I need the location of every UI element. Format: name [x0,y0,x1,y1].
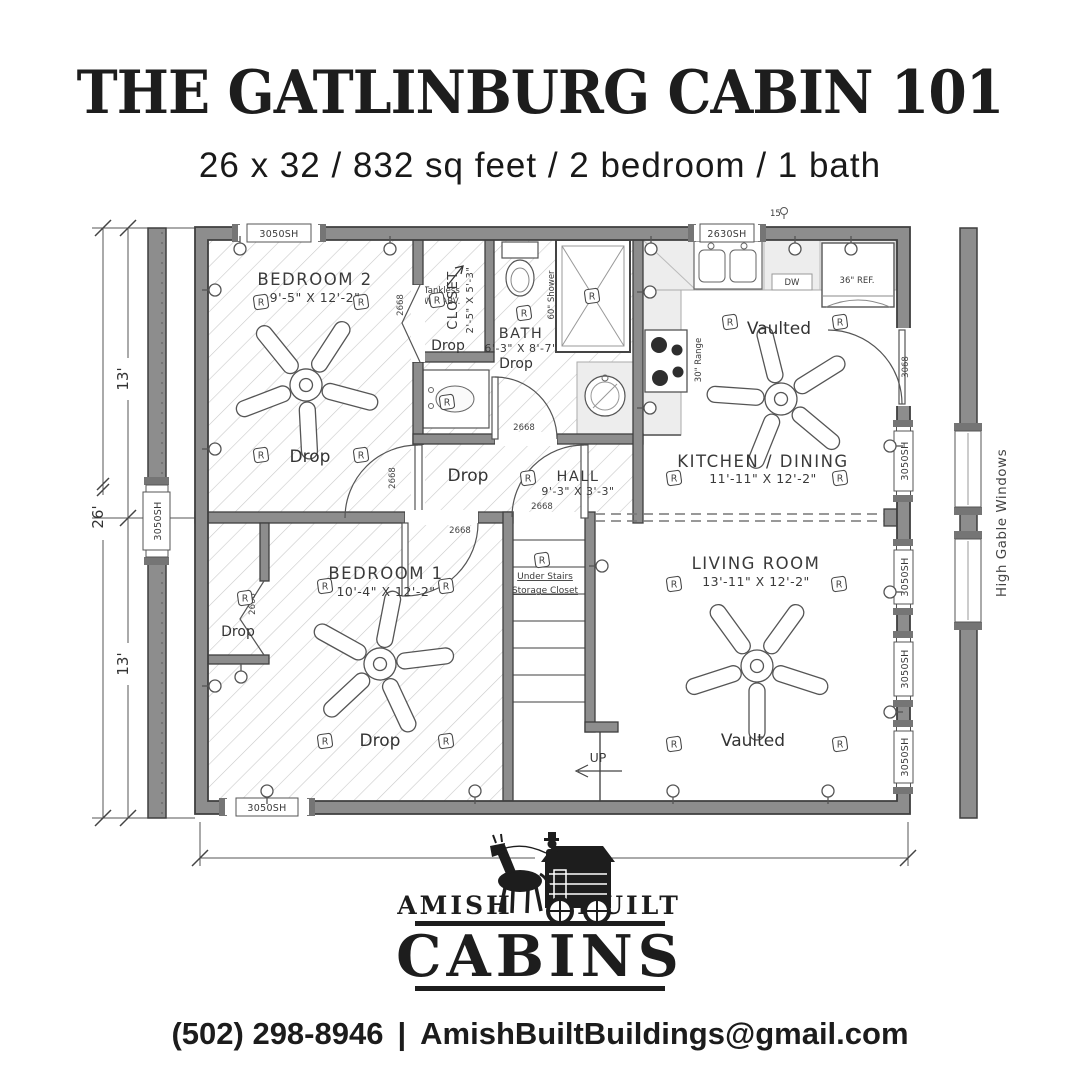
bath-dims: 6'-3" X 8'-7" [484,342,557,355]
recessed-light-icon [722,314,738,330]
left-window-label: 3050SH [153,501,164,540]
bath-name: BATH [499,326,544,342]
range: 30" Range [645,330,704,392]
logo-cabins: CABINS [396,923,684,990]
svg-text:3050SH: 3050SH [900,441,911,480]
drop-label: Drop [448,466,489,486]
bedroom2-dims: 9'-5" X 12'-2" [270,290,361,305]
svg-text:3050SH: 3050SH [259,229,298,240]
shower-label: 60" Shower [547,270,557,320]
dishwasher-label: DW [785,278,801,288]
bedroom1-dims: 10'-4" X 12'-2" [336,584,435,599]
refrigerator: 36" REF. [822,243,894,307]
kitchen-sink [694,241,762,289]
contact-email: AmishBuiltBuildings@gmail.com [420,1016,908,1051]
high-gable-windows-label: High Gable Windows [994,449,1010,597]
dishwasher: DW [772,274,812,290]
drop-label: Drop [290,447,331,467]
vaulted-label: Vaulted [721,731,785,751]
logo-divider-bottom [415,986,665,991]
page: THE GATLINBURG CABIN 101 26 x 32 / 832 s… [0,0,1080,1080]
recessed-light-icon [584,288,600,304]
ceiling-symbol-icon [781,208,788,215]
drop-label: Drop [221,624,255,640]
ceiling-height-note: 15 [770,209,781,219]
window-living-right-1: 3050SH [893,539,913,615]
kitchen-dims: 11'-11" X 12'-2" [709,471,817,486]
bath-vanity [423,370,489,428]
recessed-light-icon [832,314,848,330]
recessed-light-icon [353,447,369,463]
up-label: UP [590,750,607,765]
right-gable-wall: High Gable Windows [954,228,1010,818]
logo: AMISH BUILT [396,832,684,991]
living-dims: 13'-11" X 12'-2" [702,574,810,589]
svg-text:3050SH: 3050SH [900,737,911,776]
under-stairs-label-1: Under Stairs [517,572,573,582]
window-kitchen-right: 3050SH [893,420,913,502]
closet-name: CLOSET [446,270,461,330]
window-living-right-3: 3050SH [893,720,913,794]
dim-13ft-lower: 13' [114,652,132,675]
kitchen-name: KITCHEN / DINING [677,452,848,471]
door-size-bath: 2668 [513,423,535,433]
recessed-light-icon [520,470,536,486]
contact-line: (502) 298-8946|AmishBuiltBuildings@gmail… [0,1016,1080,1052]
window-living-right-2: 3050SH [893,631,913,707]
recessed-light-icon [666,736,682,752]
left-gable-wall: 3050SH [143,228,170,818]
svg-text:2630SH: 2630SH [707,229,746,240]
logo-amish: AMISH [396,891,512,920]
drop-label: Drop [360,731,401,751]
door-size-stairs: 2668 [531,502,553,512]
recessed-light-icon [832,736,848,752]
recessed-light-icon [666,576,682,592]
contact-separator: | [397,1016,406,1051]
bath-lavatory [577,362,633,434]
hall-dims: 9'-3" X 3'-3" [541,485,614,498]
recessed-light-icon [317,733,333,749]
floor-plan: R [0,0,1080,1080]
svg-text:3050SH: 3050SH [900,649,911,688]
dim-26ft: 26' [89,505,107,528]
recessed-light-icon [237,590,253,606]
window-kitchen-top: 2630SH [688,224,766,242]
recessed-light-icon [831,576,847,592]
drop-label: Drop [431,338,465,354]
recessed-light-icon [666,470,682,486]
door-size-kitchen-entry: 3068 [901,356,911,378]
recessed-light-icon [439,394,455,410]
bedroom2-name: BEDROOM 2 [257,270,372,289]
recessed-light-icon [516,305,532,321]
door-size-bedroom2: 2668 [388,467,398,489]
vaulted-label: Vaulted [747,319,811,339]
recessed-light-icon [832,470,848,486]
svg-text:3050SH: 3050SH [247,803,286,814]
dim-13ft-upper: 13' [114,367,132,390]
hall-name: HALL [557,469,600,485]
window-bedroom2-top: 3050SH [232,224,326,242]
contact-phone: (502) 298-8946 [171,1016,383,1051]
recessed-light-icon [429,292,445,308]
drop-label: Drop [499,356,533,372]
recessed-light-icon [253,447,269,463]
recessed-light-icon [534,552,550,568]
recessed-light-icon [253,294,269,310]
svg-text:3050SH: 3050SH [900,557,911,596]
door-size-closet2: 2668 [396,294,406,316]
fridge-label: 36" REF. [840,276,875,286]
living-name: LIVING ROOM [692,554,821,573]
closet-dims: 2'-5" X 5'-3" [465,266,476,333]
door-size-bedroom1: 2668 [449,526,471,536]
range-label: 30" Range [694,338,704,382]
bedroom1-name: BEDROOM 1 [328,564,443,583]
recessed-light-icon [438,733,454,749]
under-stairs-label-2: Storage Closet [512,586,579,596]
